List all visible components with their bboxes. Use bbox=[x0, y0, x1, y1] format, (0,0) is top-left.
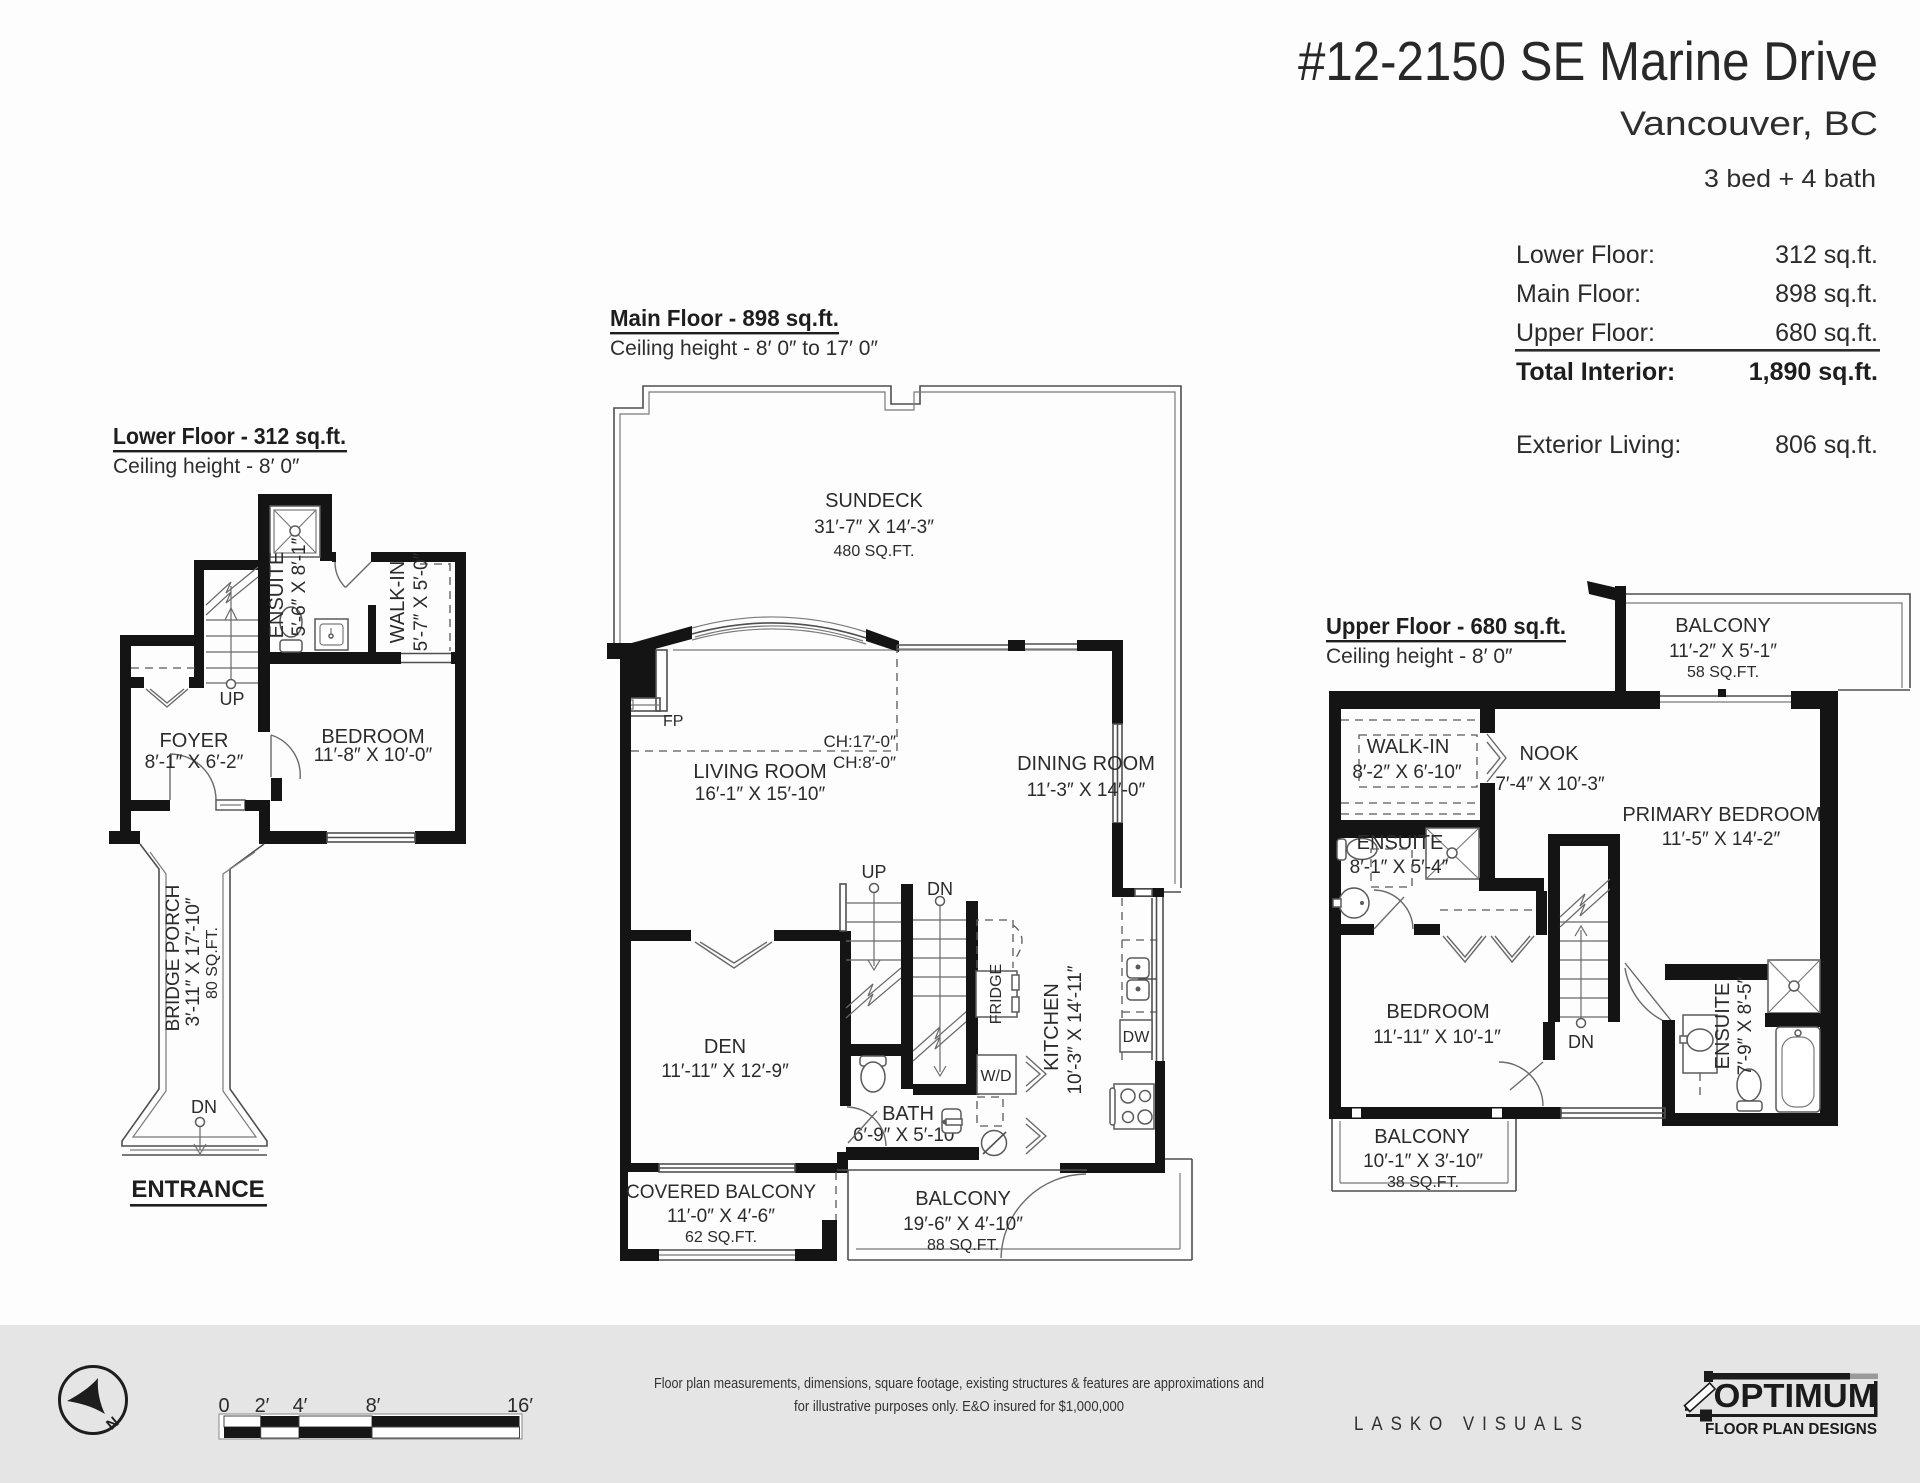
svg-text:Ceiling height - 8′ 0″: Ceiling height - 8′ 0″ bbox=[113, 455, 300, 478]
svg-text:BATH: BATH bbox=[882, 1103, 934, 1125]
svg-text:UP: UP bbox=[219, 689, 244, 709]
svg-text:80 SQ.FT.: 80 SQ.FT. bbox=[204, 927, 221, 999]
svg-text:806 sq.ft.: 806 sq.ft. bbox=[1775, 431, 1878, 459]
svg-text:11′-2″ X 5′-1″: 11′-2″ X 5′-1″ bbox=[1669, 641, 1777, 662]
svg-text:BRIDGE PORCH: BRIDGE PORCH bbox=[163, 885, 184, 1032]
svg-text:WALK-IN: WALK-IN bbox=[1367, 736, 1450, 758]
svg-text:OPTIMUM: OPTIMUM bbox=[1714, 1377, 1877, 1414]
svg-text:8′-2″ X 6′-10″: 8′-2″ X 6′-10″ bbox=[1352, 762, 1462, 783]
svg-text:31′-7″ X 14′-3″: 31′-7″ X 14′-3″ bbox=[814, 517, 934, 538]
svg-text:Floor plan measurements, dime: Floor plan measurements, dimensions, squ… bbox=[654, 1375, 1264, 1392]
svg-text:62 SQ.FT.: 62 SQ.FT. bbox=[685, 1229, 757, 1246]
svg-text:PRIMARY BEDROOM: PRIMARY BEDROOM bbox=[1622, 804, 1821, 826]
svg-text:11′-5″ X 14′-2″: 11′-5″ X 14′-2″ bbox=[1662, 829, 1781, 850]
svg-text:KITCHEN: KITCHEN bbox=[1041, 983, 1063, 1071]
svg-text:8′-1″ X 6′-2″: 8′-1″ X 6′-2″ bbox=[145, 752, 244, 773]
svg-text:38 SQ.FT.: 38 SQ.FT. bbox=[1387, 1174, 1459, 1191]
svg-text:11′-8″ X 10′-0″: 11′-8″ X 10′-0″ bbox=[314, 745, 433, 766]
svg-text:58 SQ.FT.: 58 SQ.FT. bbox=[1687, 664, 1759, 681]
svg-text:5′-6″ X 8′-1″: 5′-6″ X 8′-1″ bbox=[289, 537, 310, 636]
svg-text:11′-11″ X 10′-1″: 11′-11″ X 10′-1″ bbox=[1373, 1027, 1501, 1048]
svg-text:BALCONY: BALCONY bbox=[915, 1188, 1011, 1210]
svg-text:11′-3″ X 14′-0″: 11′-3″ X 14′-0″ bbox=[1027, 780, 1146, 801]
svg-text:BALCONY: BALCONY bbox=[1374, 1126, 1470, 1148]
svg-text:88 SQ.FT.: 88 SQ.FT. bbox=[927, 1237, 999, 1254]
svg-text:LASKO VISUALS: LASKO VISUALS bbox=[1354, 1414, 1590, 1435]
svg-text:312 sq.ft.: 312 sq.ft. bbox=[1775, 241, 1878, 269]
svg-text:Exterior Living:: Exterior Living: bbox=[1516, 431, 1681, 459]
svg-text:CH:8′-0″: CH:8′-0″ bbox=[833, 753, 896, 772]
svg-text:Main Floor - 898 sq.ft.: Main Floor - 898 sq.ft. bbox=[610, 305, 839, 331]
svg-text:1,890 sq.ft.: 1,890 sq.ft. bbox=[1749, 358, 1878, 386]
svg-text:DEN: DEN bbox=[704, 1036, 746, 1058]
svg-text:680 sq.ft.: 680 sq.ft. bbox=[1775, 319, 1878, 347]
svg-text:SUNDECK: SUNDECK bbox=[825, 490, 923, 512]
svg-text:Main Floor:: Main Floor: bbox=[1516, 280, 1641, 308]
svg-text:CH:17′-0″: CH:17′-0″ bbox=[823, 732, 896, 751]
svg-text:898 sq.ft.: 898 sq.ft. bbox=[1775, 280, 1878, 308]
svg-text:16′-1″ X 15′-10″: 16′-1″ X 15′-10″ bbox=[695, 784, 826, 805]
svg-text:ENSUITE: ENSUITE bbox=[1357, 832, 1444, 854]
svg-text:480 SQ.FT.: 480 SQ.FT. bbox=[834, 543, 915, 560]
svg-text:WALK-IN: WALK-IN bbox=[387, 561, 409, 644]
svg-text:#12-2150 SE Marine Drive: #12-2150 SE Marine Drive bbox=[1298, 30, 1878, 92]
svg-text:8′-1″ X 5′-4″: 8′-1″ X 5′-4″ bbox=[1350, 857, 1449, 878]
svg-text:DN: DN bbox=[191, 1097, 217, 1117]
svg-text:11′-11″ X 12′-9″: 11′-11″ X 12′-9″ bbox=[661, 1061, 789, 1082]
svg-text:19′-6″ X 4′-10″: 19′-6″ X 4′-10″ bbox=[903, 1214, 1023, 1235]
svg-text:DW: DW bbox=[1123, 1029, 1151, 1046]
svg-text:BALCONY: BALCONY bbox=[1675, 615, 1771, 637]
svg-text:FOYER: FOYER bbox=[160, 730, 229, 752]
svg-text:UP: UP bbox=[861, 862, 886, 882]
svg-text:3′-11″ X 17′-10″: 3′-11″ X 17′-10″ bbox=[183, 897, 204, 1026]
svg-text:FLOOR PLAN DESIGNS: FLOOR PLAN DESIGNS bbox=[1705, 1421, 1877, 1438]
svg-text:BEDROOM: BEDROOM bbox=[1386, 1001, 1489, 1023]
svg-text:COVERED BALCONY: COVERED BALCONY bbox=[626, 1182, 816, 1203]
svg-text:NOOK: NOOK bbox=[1520, 743, 1580, 765]
svg-text:Ceiling height - 8′ 0″ to 17′: Ceiling height - 8′ 0″ to 17′ 0″ bbox=[610, 337, 878, 360]
svg-text:FRIDGE: FRIDGE bbox=[988, 964, 1005, 1024]
svg-text:ENTRANCE: ENTRANCE bbox=[131, 1176, 264, 1203]
svg-text:7′-9″ X 8′-5″: 7′-9″ X 8′-5″ bbox=[1735, 976, 1756, 1075]
svg-text:Ceiling height - 8′ 0″: Ceiling height - 8′ 0″ bbox=[1326, 645, 1513, 668]
svg-text:Vancouver, BC: Vancouver, BC bbox=[1620, 105, 1878, 143]
svg-text:ENSUITE: ENSUITE bbox=[266, 552, 288, 639]
svg-text:Lower Floor - 312 sq.ft.: Lower Floor - 312 sq.ft. bbox=[113, 423, 346, 449]
svg-text:DN: DN bbox=[1568, 1032, 1594, 1052]
svg-text:10′-3″ X 14′-11″: 10′-3″ X 14′-11″ bbox=[1065, 965, 1086, 1094]
svg-text:ENSUITE: ENSUITE bbox=[1712, 983, 1734, 1070]
svg-text:W/D: W/D bbox=[980, 1068, 1011, 1085]
svg-text:3 bed + 4 bath: 3 bed + 4 bath bbox=[1704, 165, 1876, 193]
svg-text:FP: FP bbox=[663, 713, 683, 730]
svg-text:11′-0″ X 4′-6″: 11′-0″ X 4′-6″ bbox=[667, 1206, 775, 1227]
svg-text:7′-4″ X 10′-3″: 7′-4″ X 10′-3″ bbox=[1495, 774, 1605, 795]
svg-text:LIVING ROOM: LIVING ROOM bbox=[693, 761, 826, 783]
svg-text:10′-1″ X 3′-10″: 10′-1″ X 3′-10″ bbox=[1363, 1151, 1483, 1172]
svg-text:DN: DN bbox=[927, 879, 953, 899]
svg-text:Lower Floor:: Lower Floor: bbox=[1516, 241, 1655, 269]
svg-text:DINING ROOM: DINING ROOM bbox=[1017, 753, 1155, 775]
svg-text:for illustrative purposes only: for illustrative purposes only. E&O insu… bbox=[794, 1398, 1124, 1415]
svg-text:Total Interior:: Total Interior: bbox=[1516, 358, 1675, 386]
svg-text:Upper Floor:: Upper Floor: bbox=[1516, 319, 1655, 347]
svg-text:Upper Floor - 680 sq.ft.: Upper Floor - 680 sq.ft. bbox=[1326, 613, 1566, 639]
svg-text:5′-7″ X 5′-0″: 5′-7″ X 5′-0″ bbox=[411, 552, 432, 651]
